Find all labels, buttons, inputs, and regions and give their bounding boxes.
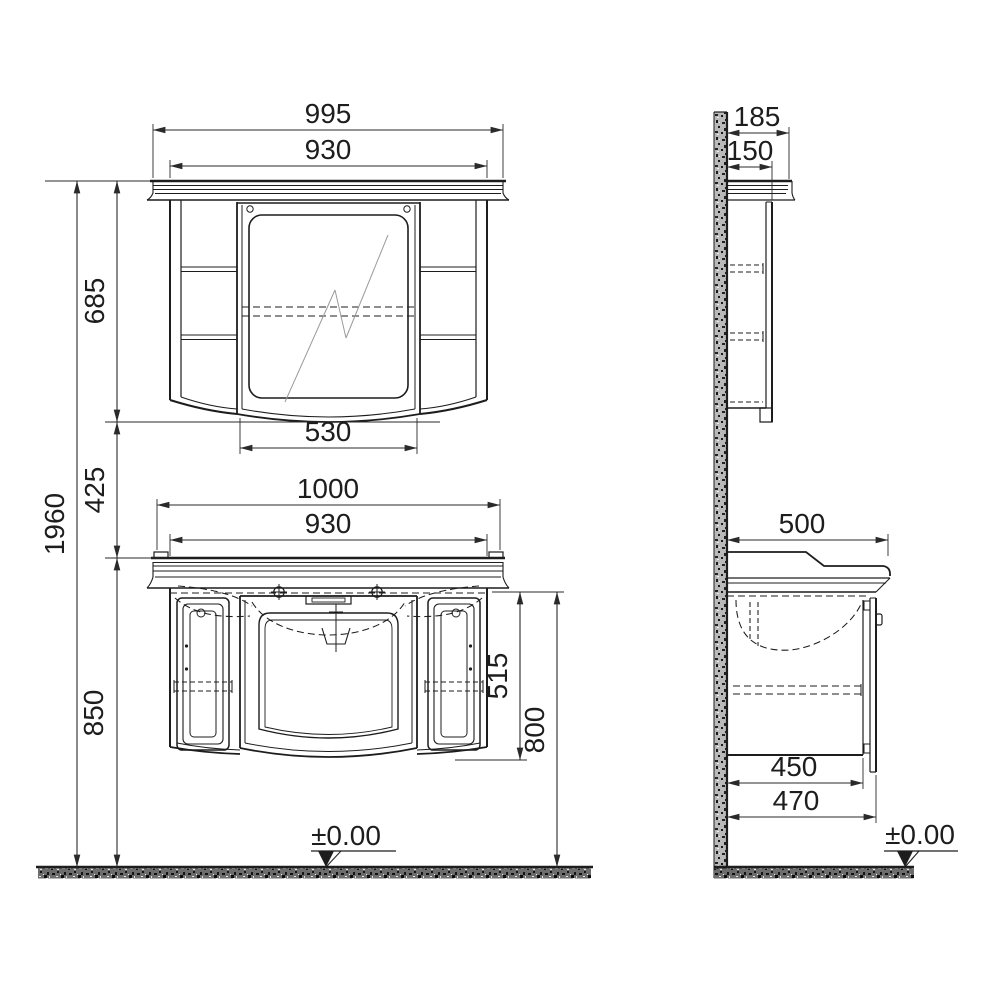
screw-icon [404, 206, 410, 212]
hinge-icon [452, 609, 460, 617]
mirror-reflection-lines [285, 235, 388, 402]
wall-section [714, 112, 727, 878]
door-handle-slot [306, 596, 351, 604]
side-door-right [425, 598, 483, 750]
dim-mirror-cabinet-body-width: 930 [305, 134, 352, 165]
front-view-mirror-cabinet [147, 181, 509, 422]
hinge-icon [864, 601, 870, 610]
open-shelves-left [181, 267, 237, 340]
mirror-glass [249, 215, 408, 398]
ground-left [36, 867, 593, 879]
floor-level-label: ±0.00 [885, 819, 955, 850]
dim-overall-height: 1960 [39, 493, 70, 555]
side-view-vanity [727, 552, 890, 772]
level-triangle-icon [318, 851, 334, 867]
dim-vanity-body-width: 930 [305, 508, 352, 539]
dim-vanity-countertop-width: 1000 [297, 473, 359, 504]
screw-icon [247, 206, 253, 212]
dimensions: 995 930 530 685 1960 425 850 1000 930 51… [39, 98, 888, 867]
technical-drawing-sheet: 995 930 530 685 1960 425 850 1000 930 51… [0, 0, 990, 990]
front-view-vanity [147, 552, 509, 757]
cabinet-foot [760, 408, 772, 422]
floor-level-label: ±0.00 [311, 820, 381, 851]
side-door-left [174, 598, 232, 750]
dim-mirror-cabinet-body-depth: 150 [727, 135, 774, 166]
floor-level-marker-left: ±0.00 [311, 820, 396, 867]
dim-mirror-cabinet-overall-width: 995 [305, 98, 352, 129]
hinge-icon [197, 609, 205, 617]
dim-mirror-cabinet-overall-depth: 185 [734, 101, 781, 132]
dim-floor-to-countertop: 850 [78, 690, 109, 737]
drain-icon [322, 604, 350, 652]
dim-mirror-door-width: 530 [305, 416, 352, 447]
dim-vanity-body-height: 515 [482, 653, 513, 700]
dim-vanity-body-depth: 450 [771, 751, 818, 782]
side-view-mirror-cabinet [727, 181, 795, 422]
dim-gap-mirror-to-counter: 425 [79, 467, 110, 514]
dim-vanity-door-depth: 470 [773, 785, 820, 816]
dim-floor-to-body-top: 800 [519, 707, 550, 754]
faucet-hole-icon [369, 584, 385, 600]
dim-vanity-countertop-depth: 500 [779, 508, 826, 539]
level-triangle-icon [897, 851, 913, 867]
mirror-door [237, 202, 420, 422]
open-shelves-right [420, 267, 476, 340]
faucet-hole-icon [271, 584, 287, 600]
dim-mirror-cabinet-height: 685 [79, 278, 110, 325]
center-door [240, 596, 417, 757]
floor-level-marker-right: ±0.00 [884, 819, 958, 867]
ground-right [714, 867, 914, 879]
hidden-basin-outline [736, 600, 862, 650]
hinge-icon [864, 744, 870, 753]
drawing-canvas: 995 930 530 685 1960 425 850 1000 930 51… [0, 0, 990, 990]
